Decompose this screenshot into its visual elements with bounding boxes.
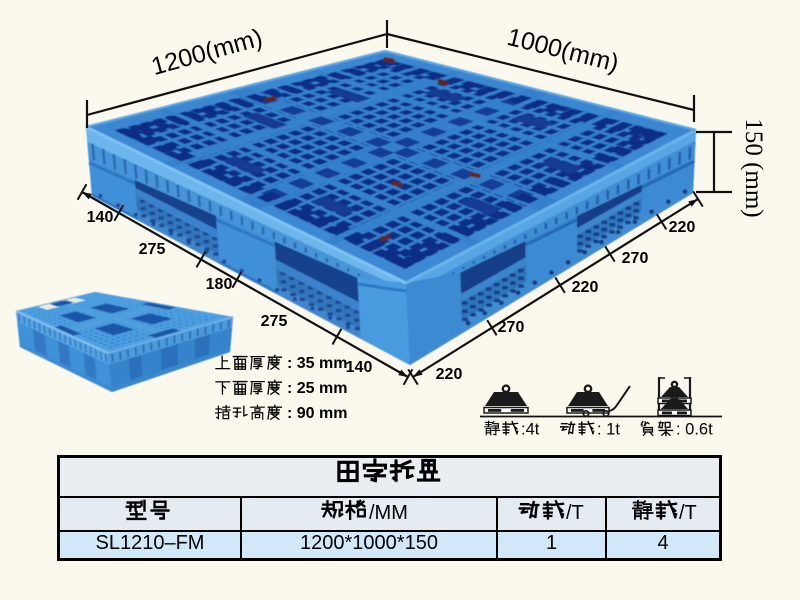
svg-text:270: 270 (622, 250, 649, 267)
svg-text::4t: :4t (521, 421, 540, 439)
svg-text:/T: /T (566, 502, 584, 524)
svg-text:150 (mm): 150 (mm) (740, 118, 767, 217)
svg-text:: 35 mm: : 35 mm (287, 355, 347, 372)
svg-text:: 0.6t: : 0.6t (676, 421, 713, 439)
svg-text:140: 140 (87, 209, 114, 226)
svg-text:/T: /T (679, 502, 697, 524)
svg-text:140: 140 (346, 359, 373, 376)
svg-text:220: 220 (669, 219, 696, 236)
svg-text:/MM: /MM (369, 502, 408, 524)
svg-text:220: 220 (572, 279, 599, 296)
svg-text:: 90 mm: : 90 mm (287, 405, 347, 422)
svg-text:220: 220 (436, 366, 463, 383)
svg-text:: 1t: : 1t (597, 421, 620, 439)
svg-text:180: 180 (206, 276, 233, 293)
svg-text:275: 275 (139, 241, 166, 258)
svg-text:270: 270 (498, 319, 525, 336)
svg-text:275: 275 (261, 313, 288, 330)
svg-text:: 25 mm: : 25 mm (287, 380, 347, 397)
svg-text:1000(mm): 1000(mm) (504, 23, 621, 78)
